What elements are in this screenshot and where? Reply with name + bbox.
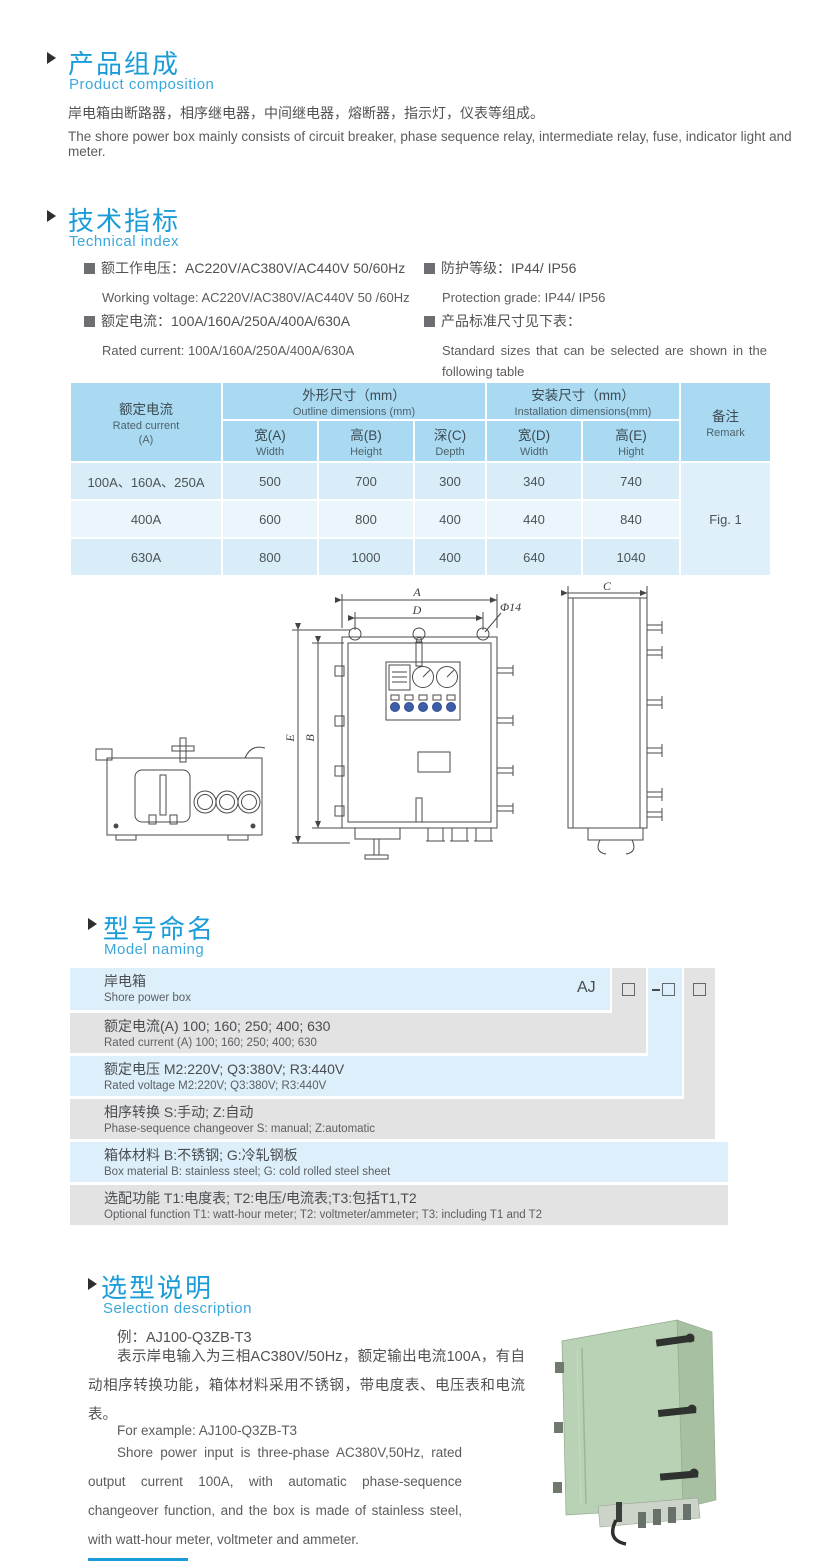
dimensions-table: 额定电流 Rated current (A) 外形尺寸（mm） Outline … (69, 381, 772, 577)
product-photo (520, 1290, 820, 1568)
bullet-square-icon (424, 263, 435, 274)
spec-en-text: Rated current: 100A/160A/250A/400A/630A (102, 340, 429, 361)
col-header-remark: 备注 Remark (681, 383, 770, 461)
bullet-square-icon (84, 263, 95, 274)
selection-body-en: Shore power input is three-phase AC380V,… (88, 1438, 462, 1554)
meter-panel-drawing (386, 662, 460, 720)
col-header-outline: 外形尺寸（mm） Outline dimensions (mm) (223, 383, 485, 419)
dim-label-d: D (412, 603, 422, 617)
spec-cn-text: 产品标准尺寸见下表： (441, 311, 581, 331)
technical-title-en: Technical index (69, 233, 179, 250)
spec-standard-sizes: 产品标准尺寸见下表： Standard sizes that can be se… (424, 311, 767, 382)
section-arrow-icon (47, 210, 56, 222)
selection-title-en: Selection description (103, 1300, 252, 1317)
section-arrow-icon (88, 1278, 97, 1290)
subcol-depth-c: 深(C)Depth (415, 421, 485, 461)
model-code-box-icon (622, 983, 635, 996)
col-header-rated-current: 额定电流 Rated current (A) (71, 383, 221, 461)
dim-label-b: B (303, 734, 317, 742)
spec-cn-text: 额定电流：100A/160A/250A/400A/630A (101, 311, 350, 331)
model-row-rated-voltage: 额定电压 M2:220V; Q3:380V; R3:440V Rated vol… (70, 1056, 682, 1096)
table-row: 400A 600 800 400 440 840 (71, 501, 770, 537)
technical-drawing: A D Φ14 E B C (60, 580, 800, 890)
model-naming-title-en: Model naming (104, 941, 204, 958)
model-code-box-icon (662, 983, 675, 996)
selection-example-en: For example: AJ100-Q3ZB-T3 (117, 1423, 297, 1438)
table-row: 100A、160A、250A 500 700 300 340 740 Fig. … (71, 463, 770, 499)
model-row-phase-changeover: 相序转换 S:手动; Z:自动 Phase-sequence changeove… (70, 1099, 715, 1139)
composition-body-cn: 岸电箱由断路器，相序继电器，中间继电器，熔断器，指示灯，仪表等组成。 (68, 103, 544, 123)
subcol-width-a: 宽(A)Width (223, 421, 317, 461)
spec-cn-text: 防护等级：IP44/ IP56 (441, 258, 576, 278)
section-arrow-icon (88, 918, 97, 930)
side-view-drawing (568, 586, 662, 854)
dim-label-c: C (603, 580, 612, 593)
table-row: 630A 800 1000 400 640 1040 (71, 539, 770, 575)
col-header-installation: 安装尺寸（mm） Installation dimensions(mm) (487, 383, 679, 419)
spec-cn-text: 额工作电压：AC220V/AC380V/AC440V 50/60Hz (101, 258, 405, 278)
spec-protection-grade: 防护等级：IP44/ IP56 Protection grade: IP44/ … (424, 258, 769, 308)
composition-body-en: The shore power box mainly consists of c… (68, 129, 830, 159)
spec-en-text: Standard sizes that can be selected are … (442, 340, 767, 382)
subcol-height-e: 高(E)Hight (583, 421, 679, 461)
dim-label-hole: Φ14 (500, 600, 521, 614)
section-arrow-icon (47, 52, 56, 64)
spec-en-text: Working voltage: AC220V/AC380V/AC440V 50… (102, 287, 429, 308)
model-row-box-material: 箱体材料 B:不锈钢; G:冷轧钢板 Box material B: stain… (70, 1142, 728, 1182)
subcol-width-d: 宽(D)Width (487, 421, 581, 461)
composition-title-en: Product composition (69, 76, 214, 93)
model-prefix: AJ (577, 979, 596, 997)
spec-rated-current: 额定电流：100A/160A/250A/400A/630A Rated curr… (84, 311, 429, 361)
dim-label-e: E (283, 734, 297, 743)
model-code-dash-icon (652, 989, 660, 991)
model-row-optional-function: 选配功能 T1:电度表; T2:电压/电流表;T3:包括T1,T2 Option… (70, 1185, 728, 1225)
datasheet-page: 产品组成 Product composition 岸电箱由断路器，相序继电器，中… (0, 0, 830, 1568)
subcol-height-b: 高(B)Height (319, 421, 413, 461)
spec-en-text: Protection grade: IP44/ IP56 (442, 287, 769, 308)
model-row-product: 岸电箱 Shore power box (70, 968, 610, 1010)
remark-value: Fig. 1 (681, 463, 770, 575)
dim-label-a: A (412, 585, 421, 599)
selection-body-cn: 表示岸电输入为三相AC380V/50Hz，额定输出电流100A，有自动相序转换功… (88, 1343, 525, 1430)
front-view-drawing (292, 594, 513, 859)
bullet-square-icon (84, 316, 95, 327)
model-row-rated-current: 额定电流(A) 100; 160; 250; 400; 630 Rated cu… (70, 1013, 646, 1053)
spec-working-voltage: 额工作电压：AC220V/AC380V/AC440V 50/60Hz Worki… (84, 258, 429, 308)
code-column-strip (648, 968, 682, 1056)
footer-blue-rule (88, 1558, 188, 1561)
bottom-view-drawing (96, 738, 265, 840)
bullet-square-icon (424, 316, 435, 327)
model-code-box-icon (693, 983, 706, 996)
